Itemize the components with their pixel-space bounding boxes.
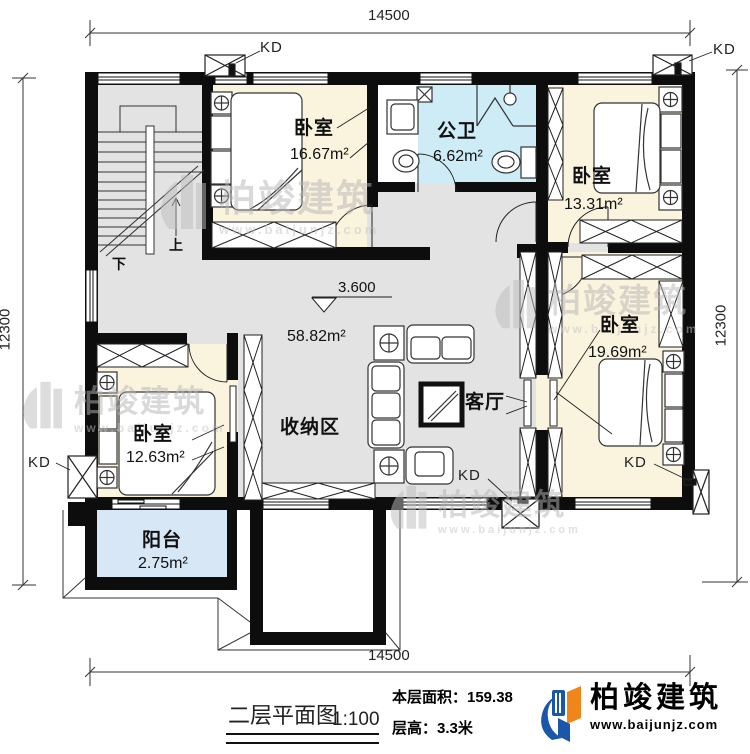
room-label-balcony: 阳台 xyxy=(142,531,182,550)
wardrobe-bedroom2 xyxy=(580,220,682,243)
window-bottom-bedroom3 xyxy=(575,498,651,509)
balcony-sliding-door xyxy=(112,499,180,509)
dim-left: 12300 xyxy=(0,309,12,351)
wardrobe-bedroom1 xyxy=(212,222,336,248)
sofa-two-seat xyxy=(407,325,474,363)
storage-cabinet-row xyxy=(262,483,375,499)
level-mark-label: 3.600 xyxy=(338,280,376,295)
stairs-down-label: 下 xyxy=(112,257,126,271)
storage-cabinet-column xyxy=(244,335,262,500)
kd-label-top-left: KD xyxy=(260,40,283,55)
side-table-bottom xyxy=(374,450,404,483)
brand-logo-icon xyxy=(536,684,586,744)
brand-url: www.baijunjz.com xyxy=(590,717,722,732)
dim-top: 14500 xyxy=(368,8,410,23)
room-area-living: 58.82m² xyxy=(287,329,346,345)
room-label-bedroom-top-right: 卧室 xyxy=(572,167,612,186)
room-area-bedroom-top-left: 16.67m² xyxy=(290,147,349,163)
floor-plan-page: 14500 14500 12300 12300 卧室 16.67m² 公卫 6.… xyxy=(0,0,750,754)
dim-right: 12300 xyxy=(713,305,728,347)
window-bottom-living xyxy=(403,498,487,509)
side-table-top xyxy=(374,326,404,360)
coffee-table xyxy=(421,384,462,425)
closet-living-strip xyxy=(520,252,536,497)
room-area-bedroom-bottom-left: 12.63m² xyxy=(126,450,185,466)
wardrobe-bedroom3-top xyxy=(582,255,682,279)
room-label-bathroom: 公卫 xyxy=(437,122,477,141)
kd-marker-top-left xyxy=(205,55,245,76)
kd-label-top-right: KD xyxy=(713,42,736,57)
sink xyxy=(393,150,419,172)
kd-marker-left xyxy=(68,456,97,498)
closet-bedroom2-strip xyxy=(548,88,563,200)
drawing-title: 二层平面图 xyxy=(228,705,338,727)
washing-machine xyxy=(387,100,418,134)
room-area-bedroom-top-right: 13.31m² xyxy=(564,197,623,213)
wardrobe-bedroom4 xyxy=(97,344,188,367)
bed-bedroom1 xyxy=(211,92,302,210)
floor-height-text: 层高：3.3米 xyxy=(392,721,473,736)
wardrobe-bedroom3-side xyxy=(659,281,683,347)
room-area-bathroom: 6.62m² xyxy=(433,149,483,165)
title-underline xyxy=(226,733,379,744)
window-left-storage xyxy=(86,270,97,322)
floor-plan-drawing xyxy=(0,0,750,754)
brand-logo: 柏竣建筑 www.baijunjz.com xyxy=(536,684,722,744)
room-label-bedroom-bottom-left: 卧室 xyxy=(133,425,173,444)
closet-bedroom3-strip xyxy=(548,252,562,497)
brand-name: 柏竣建筑 xyxy=(590,684,722,713)
kd-marker-bottom xyxy=(502,497,539,528)
window-top-bedroom1 xyxy=(253,73,328,84)
room-area-bedroom-right: 19.69m² xyxy=(588,345,647,361)
dim-bottom: 14500 xyxy=(368,648,410,663)
stairs-up-label: 上 xyxy=(169,238,183,252)
floor-area-text: 本层面积：159.38 xyxy=(392,690,513,705)
kd-label-bottom: KD xyxy=(458,468,481,483)
room-area-balcony: 2.75m² xyxy=(138,556,188,572)
room-label-bedroom-right: 卧室 xyxy=(600,316,640,335)
room-label-bedroom-top-left: 卧室 xyxy=(294,119,334,138)
kd-label-right: KD xyxy=(624,455,647,470)
armchair xyxy=(406,447,453,484)
floor-drain xyxy=(417,87,432,102)
kd-label-left: KD xyxy=(28,455,51,470)
bed-bedroom2 xyxy=(594,87,682,210)
window-top-stairs xyxy=(98,73,180,84)
kd-marker-top-right xyxy=(653,55,692,75)
room-label-living: 客厅 xyxy=(465,393,505,412)
sofa-three-seat xyxy=(368,362,404,448)
room-label-storage: 收纳区 xyxy=(280,418,340,437)
window-top-bedroom2 xyxy=(578,73,652,84)
window-bottom-terrace xyxy=(263,498,329,509)
drawing-scale: 1:100 xyxy=(332,710,380,729)
window-top-bathroom xyxy=(420,73,472,84)
